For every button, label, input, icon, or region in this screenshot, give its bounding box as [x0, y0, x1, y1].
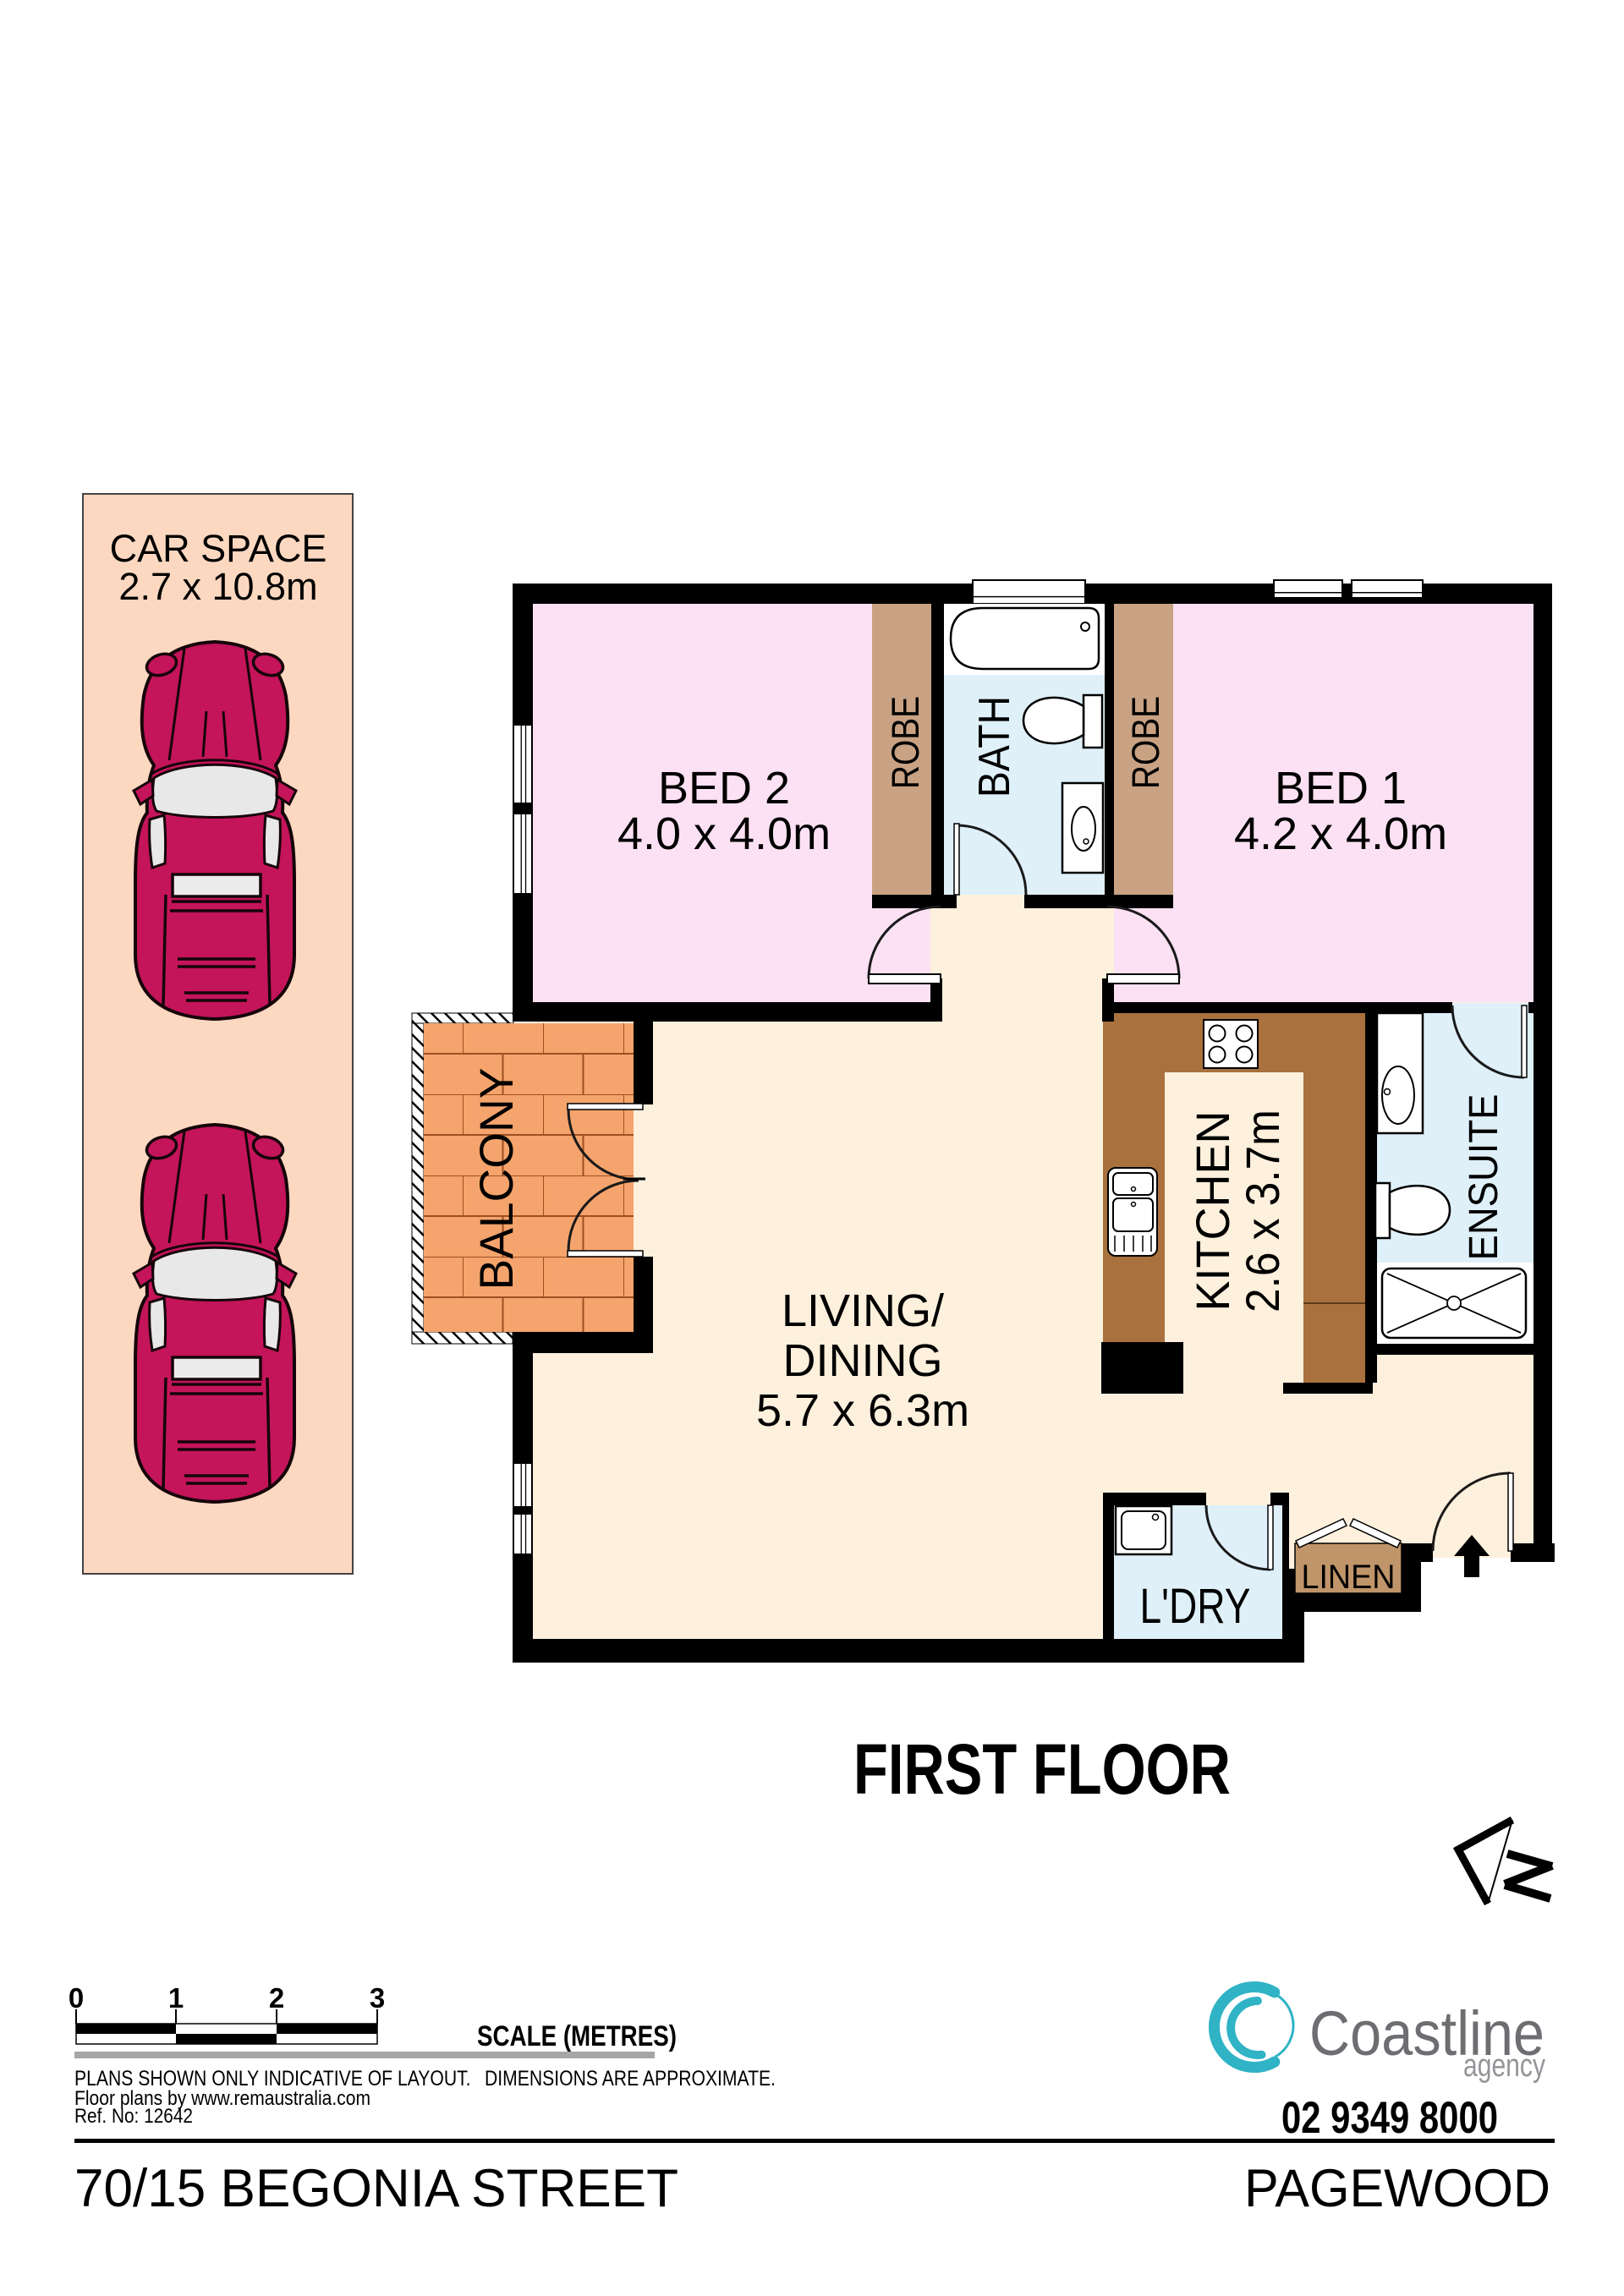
svg-text:BATH: BATH [970, 696, 1019, 797]
svg-text:4.2 x 4.0m: 4.2 x 4.0m [1234, 808, 1447, 859]
svg-text:Ref. No: 12642: Ref. No: 12642 [74, 2105, 193, 2128]
svg-text:agency: agency [1463, 2048, 1545, 2084]
svg-text:BALCONY: BALCONY [469, 1068, 523, 1290]
svg-text:0: 0 [69, 1982, 84, 2014]
svg-text:PAGEWOOD: PAGEWOOD [1244, 2159, 1550, 2218]
svg-text:BED 1: BED 1 [1275, 763, 1407, 814]
svg-text:SCALE (METRES): SCALE (METRES) [477, 2020, 677, 2052]
svg-text:2: 2 [269, 1982, 284, 2014]
svg-text:FIRST FLOOR: FIRST FLOOR [853, 1729, 1231, 1809]
svg-text:DINING: DINING [783, 1335, 943, 1386]
svg-text:70/15 BEGONIA STREET: 70/15 BEGONIA STREET [74, 2159, 678, 2218]
svg-text:LIVING/: LIVING/ [782, 1285, 944, 1336]
svg-text:5.7 x 6.3m: 5.7 x 6.3m [756, 1385, 969, 1436]
svg-text:KITCHEN: KITCHEN [1186, 1111, 1239, 1312]
svg-text:ENSUITE: ENSUITE [1462, 1094, 1506, 1261]
svg-text:02 9349 8000: 02 9349 8000 [1281, 2093, 1498, 2143]
svg-text:2.6 x 3.7m: 2.6 x 3.7m [1236, 1110, 1289, 1312]
svg-text:ROBE: ROBE [1124, 696, 1167, 789]
svg-text:4.0 x 4.0m: 4.0 x 4.0m [617, 808, 831, 859]
svg-text:1: 1 [168, 1982, 184, 2014]
svg-text:ROBE: ROBE [884, 696, 927, 789]
svg-text:BED 2: BED 2 [658, 763, 790, 814]
svg-text:CAR SPACE: CAR SPACE [110, 527, 327, 570]
svg-text:3: 3 [370, 1982, 385, 2014]
svg-text:2.7 x 10.8m: 2.7 x 10.8m [118, 565, 317, 608]
svg-text:L'DRY: L'DRY [1140, 1579, 1251, 1634]
svg-text:LINEN: LINEN [1302, 1559, 1396, 1596]
